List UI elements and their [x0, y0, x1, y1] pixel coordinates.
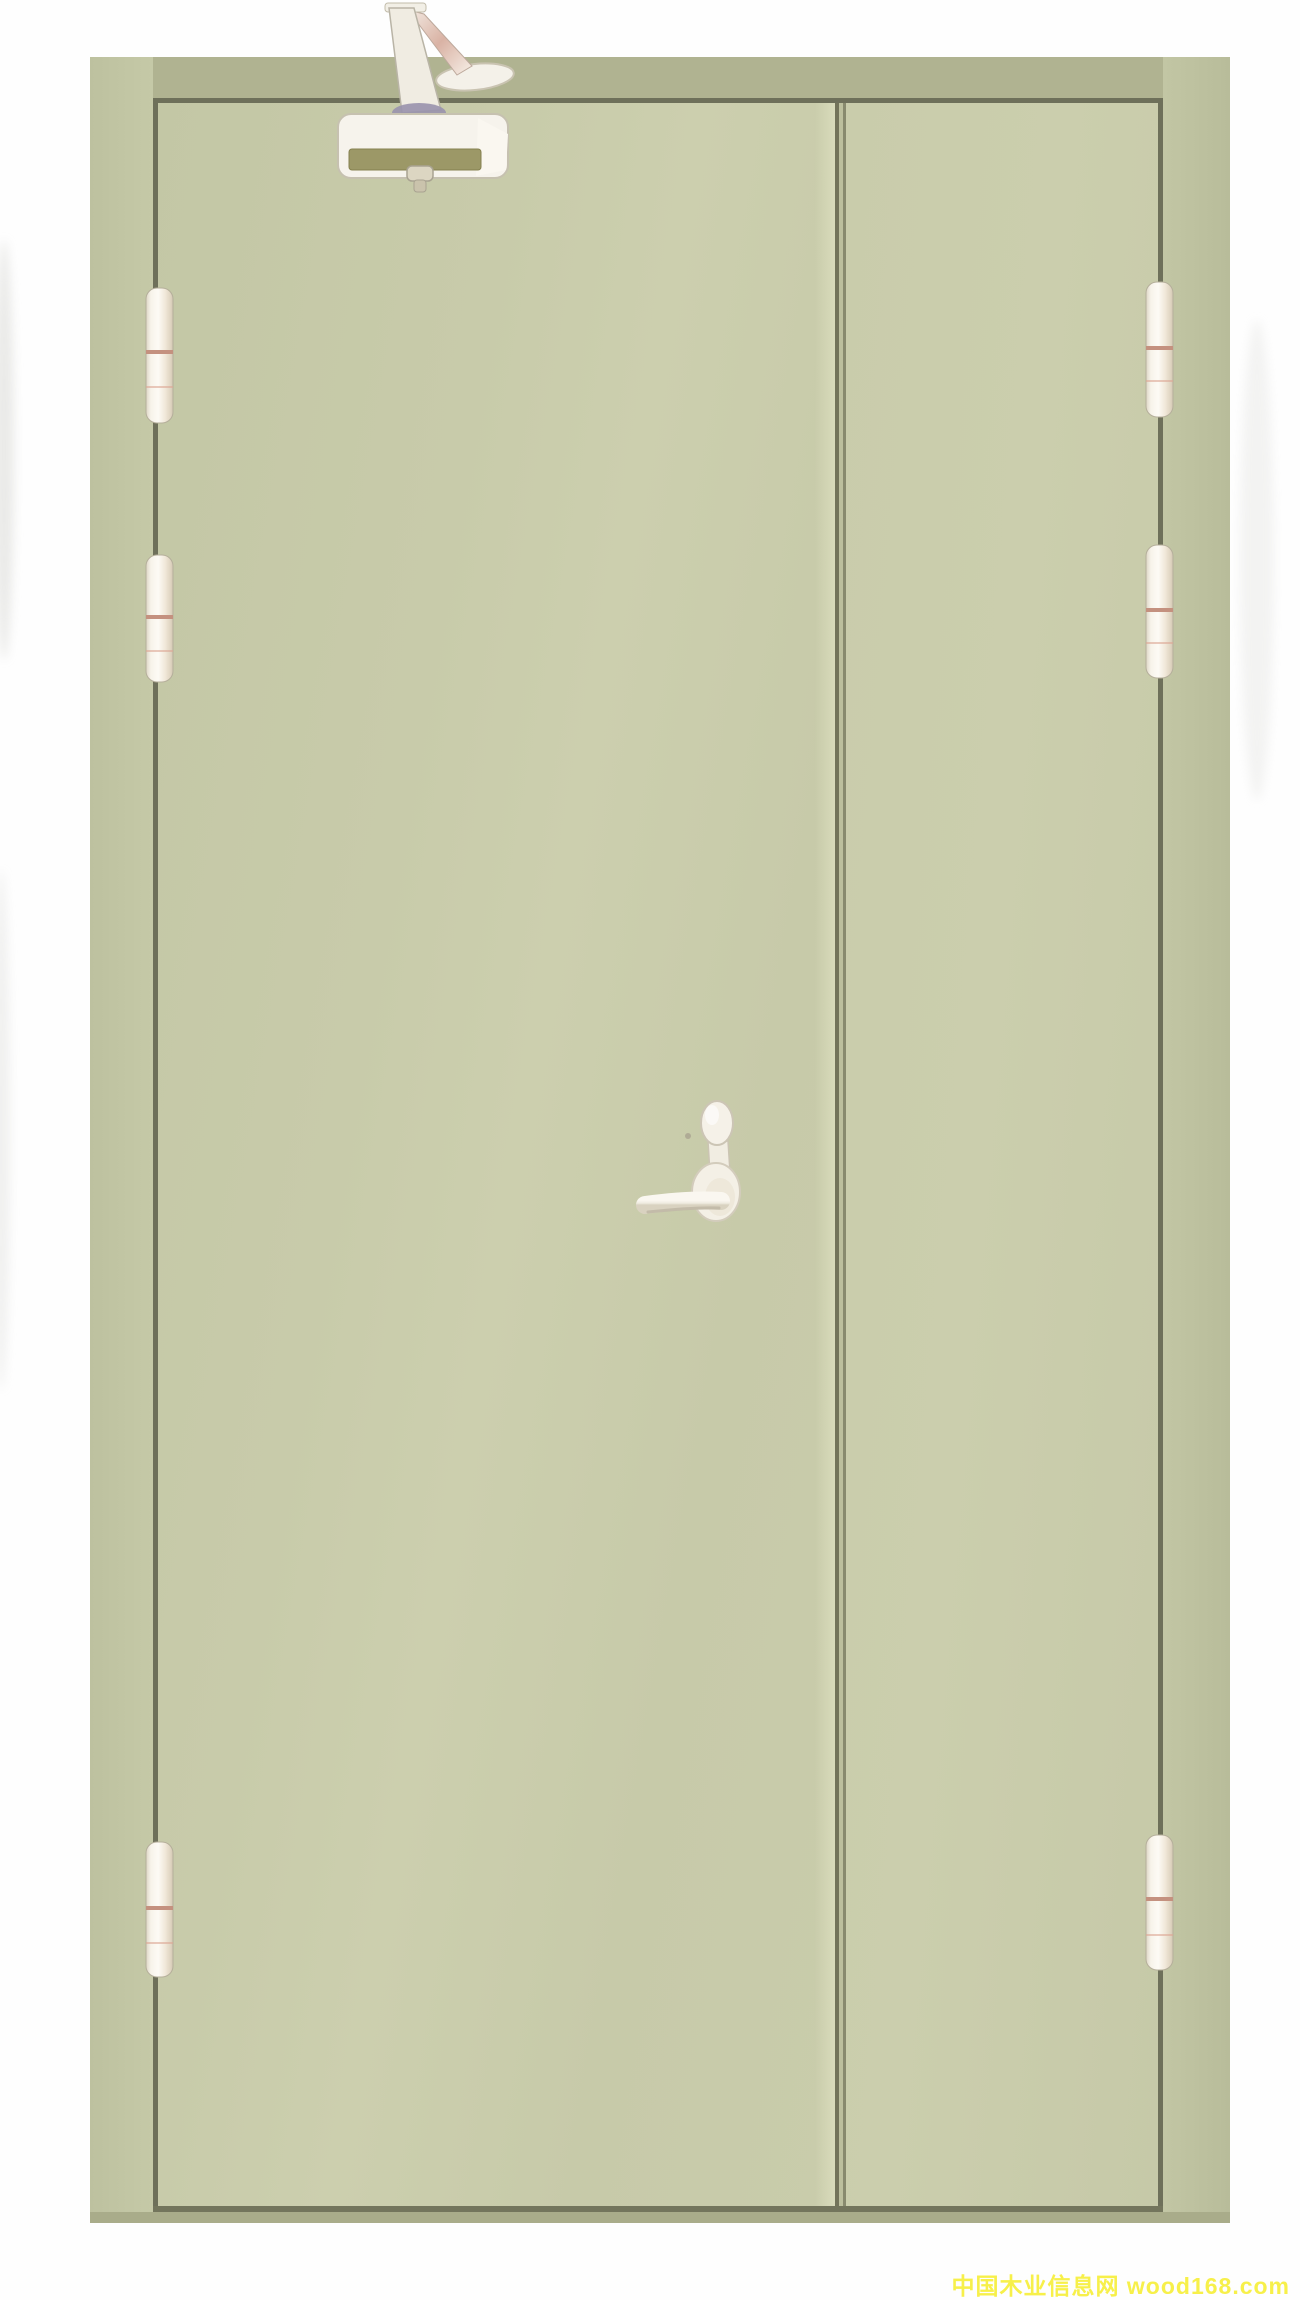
- left-door-leaf: [158, 103, 835, 2206]
- scan-smudge: [1240, 320, 1274, 800]
- meeting-stile-edge: [843, 103, 846, 2206]
- door-frame-left-jamb: [90, 57, 153, 2223]
- door-unit: [90, 57, 1230, 2223]
- door-frame-head: [90, 57, 1230, 98]
- frame-rebate-line-bottom: [153, 2206, 1163, 2212]
- closer-elbow-cap: [385, 3, 426, 12]
- frame-rebate-line-right: [1158, 98, 1163, 2212]
- right-door-leaf: [846, 103, 1158, 2206]
- scan-smudge: [0, 870, 10, 1390]
- door-frame-threshold: [90, 2212, 1230, 2223]
- watermark: 中国木业信息网 wood168.com: [952, 2267, 1290, 2300]
- scan-smudge: [0, 240, 14, 660]
- product-photo: 中国木业信息网 wood168.com: [0, 0, 1300, 2300]
- door-frame-right-jamb: [1163, 57, 1230, 2223]
